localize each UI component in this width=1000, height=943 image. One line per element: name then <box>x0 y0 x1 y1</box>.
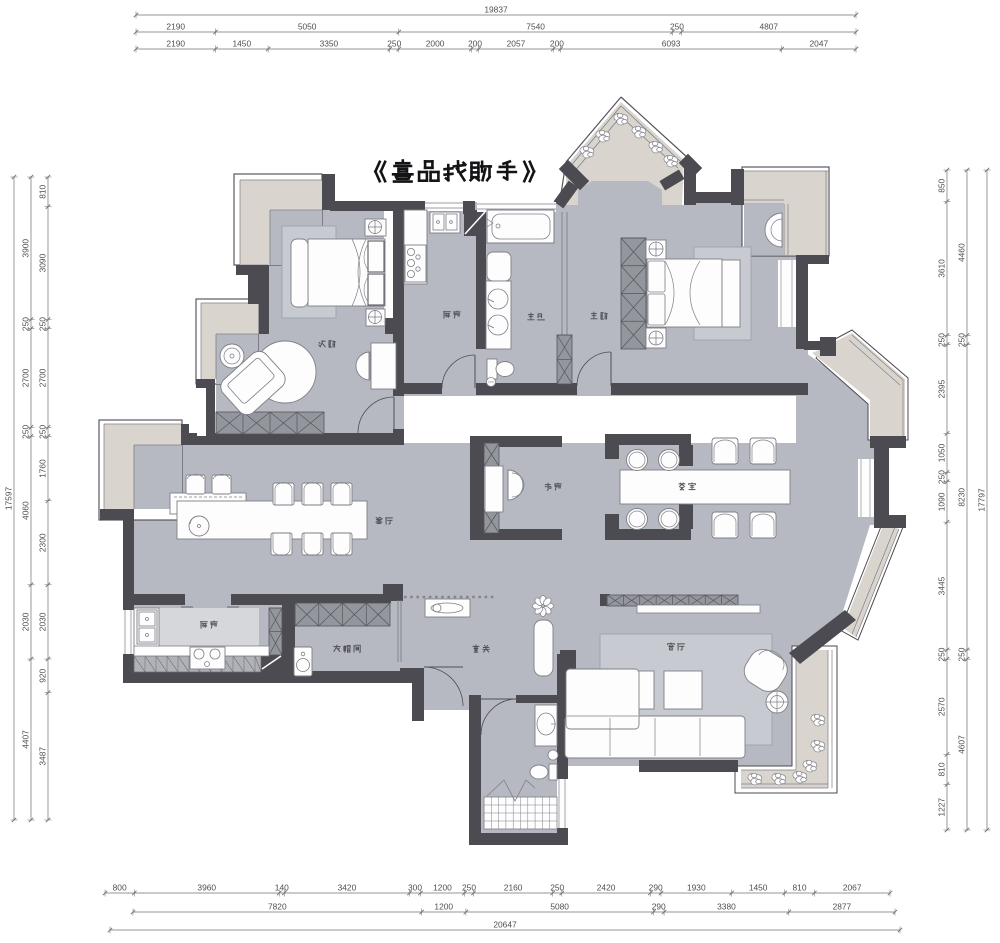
svg-text:17597: 17597 <box>4 487 14 511</box>
svg-text:810: 810 <box>793 883 807 893</box>
svg-text:4607: 4607 <box>957 735 967 754</box>
svg-text:250: 250 <box>957 647 967 661</box>
svg-text:3610: 3610 <box>937 259 947 278</box>
svg-text:1050: 1050 <box>937 443 947 462</box>
svg-text:1227: 1227 <box>937 798 947 817</box>
svg-text:1450: 1450 <box>749 883 768 893</box>
svg-text:2160: 2160 <box>504 883 523 893</box>
svg-text:7540: 7540 <box>526 22 545 32</box>
svg-text:250: 250 <box>937 470 947 484</box>
svg-text:250: 250 <box>38 317 48 331</box>
svg-text:250: 250 <box>462 883 476 893</box>
svg-text:200: 200 <box>550 39 564 49</box>
svg-text:4060: 4060 <box>21 501 31 520</box>
svg-text:250: 250 <box>387 39 401 49</box>
svg-text:2067: 2067 <box>843 883 862 893</box>
svg-text:3090: 3090 <box>38 253 48 272</box>
svg-text:2030: 2030 <box>38 612 48 631</box>
svg-text:3445: 3445 <box>937 576 947 595</box>
svg-text:20647: 20647 <box>493 920 517 930</box>
svg-text:6093: 6093 <box>662 39 681 49</box>
svg-text:810: 810 <box>38 184 48 198</box>
svg-text:300: 300 <box>408 883 422 893</box>
svg-text:4460: 4460 <box>957 243 967 262</box>
svg-text:1760: 1760 <box>38 459 48 478</box>
svg-text:1200: 1200 <box>433 883 452 893</box>
svg-text:290: 290 <box>649 883 663 893</box>
svg-text:250: 250 <box>550 883 564 893</box>
svg-text:3900: 3900 <box>21 239 31 258</box>
svg-text:2057: 2057 <box>507 39 526 49</box>
svg-text:3960: 3960 <box>197 883 216 893</box>
svg-text:290: 290 <box>652 902 666 912</box>
svg-text:1450: 1450 <box>232 39 251 49</box>
svg-text:2300: 2300 <box>38 533 48 552</box>
svg-text:2190: 2190 <box>166 22 185 32</box>
svg-text:2030: 2030 <box>21 612 31 631</box>
svg-text:250: 250 <box>670 22 684 32</box>
svg-text:200: 200 <box>468 39 482 49</box>
svg-text:2420: 2420 <box>597 883 616 893</box>
svg-text:1090: 1090 <box>937 492 947 511</box>
svg-text:2000: 2000 <box>426 39 445 49</box>
svg-text:250: 250 <box>937 647 947 661</box>
svg-text:3380: 3380 <box>717 902 736 912</box>
svg-text:2570: 2570 <box>937 697 947 716</box>
svg-text:250: 250 <box>21 317 31 331</box>
svg-text:19837: 19837 <box>484 5 508 15</box>
svg-text:5080: 5080 <box>550 902 569 912</box>
svg-text:140: 140 <box>275 883 289 893</box>
svg-text:8230: 8230 <box>957 488 967 507</box>
svg-text:4407: 4407 <box>21 730 31 749</box>
svg-text:7820: 7820 <box>268 902 287 912</box>
svg-text:3487: 3487 <box>38 747 48 766</box>
svg-text:2877: 2877 <box>833 902 852 912</box>
svg-text:17797: 17797 <box>977 488 987 512</box>
svg-text:4807: 4807 <box>759 22 778 32</box>
svg-text:1200: 1200 <box>434 902 453 912</box>
svg-text:2700: 2700 <box>38 368 48 387</box>
svg-text:3420: 3420 <box>338 883 357 893</box>
svg-text:810: 810 <box>937 762 947 776</box>
svg-text:2395: 2395 <box>937 379 947 398</box>
svg-text:5050: 5050 <box>298 22 317 32</box>
svg-text:1930: 1930 <box>687 883 706 893</box>
svg-text:250: 250 <box>957 333 967 347</box>
svg-text:850: 850 <box>937 178 947 192</box>
svg-text:250: 250 <box>937 333 947 347</box>
svg-text:3350: 3350 <box>320 39 339 49</box>
svg-text:800: 800 <box>113 883 127 893</box>
svg-text:2190: 2190 <box>166 39 185 49</box>
svg-text:2047: 2047 <box>810 39 829 49</box>
svg-text:250: 250 <box>21 425 31 439</box>
svg-text:920: 920 <box>38 668 48 682</box>
svg-text:2700: 2700 <box>21 368 31 387</box>
svg-text:250: 250 <box>38 425 48 439</box>
